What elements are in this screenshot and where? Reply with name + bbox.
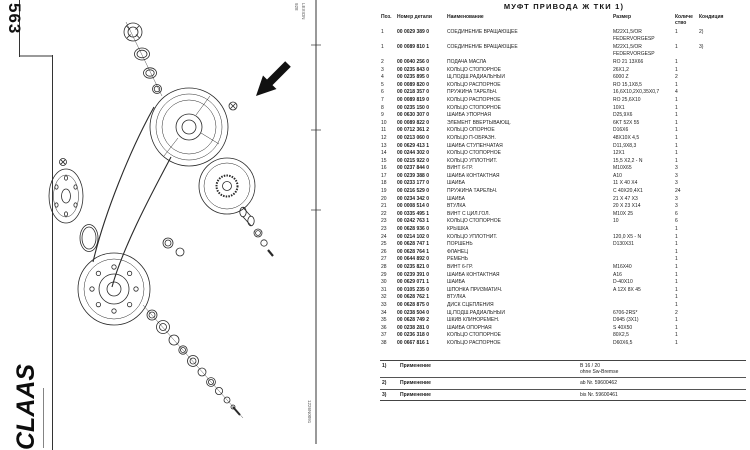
note-row: 2)Применениеab Nr. 59600462 [380,377,746,388]
cell-pn: 00 0335 495 1 [396,211,446,219]
cell-cond [698,302,746,310]
cell-pos: 15 [380,158,396,166]
col-header-name: Наименование [446,14,612,29]
cell-cond [698,317,746,325]
exploded-diagram [0,0,375,450]
table-row: 1100 0712 361 2КОЛЬЦО ОПОРНОЕD16X61 [380,127,746,135]
shaft-parts-cascade [163,207,273,256]
cell-name: КРЫШКА [446,226,612,234]
cell-cond: 3) [698,44,746,59]
table-row: 2600 0628 764 1ФЛАНЕЦ1 [380,249,746,257]
fastener-cascade [143,305,243,418]
cell-pn: 00 0644 892 0 [396,256,446,264]
note-value: ab Nr. 59600462 [580,380,746,386]
cell-pos: 6 [380,89,396,97]
model-label: LEXION [301,3,306,20]
cell-name: ВИНТ 6-ГР. [446,264,612,272]
table-row: 2300 0628 936 0КРЫШКА1 [380,226,746,234]
col-header-size: Размер [612,14,674,29]
cell-cond [698,249,746,257]
cell-cond [698,143,746,151]
col-header-part-number: Номер детали [396,14,446,29]
cell-cond [698,188,746,196]
cell-cond [698,279,746,287]
cell-pos: 13 [380,143,396,151]
cell-qty: 1 [674,302,698,310]
cell-pos: 36 [380,325,396,333]
table-row: 700 0089 819 0КОЛЬЦО РАСПОРНОЕRO 25,6X10… [380,97,746,105]
cell-size [612,249,674,257]
cell-qty: 1 [674,135,698,143]
cell-cond [698,150,746,158]
cell-pos: 5 [380,82,396,90]
cell-pos: 26 [380,249,396,257]
cell-name: ШАЙБА УПОРНАЯ [446,112,612,120]
cell-name: ВИНТ 6-ГР. [446,165,612,173]
cell-pos: 22 [380,211,396,219]
cell-pos: 1 [380,29,396,44]
cell-qty: 1 [674,29,698,44]
cell-size: 48X10X 4,5 [612,135,674,143]
cell-cond [698,82,746,90]
table-row: 1300 0629 413 1ШАЙБА СТУПЕНЧАТАЯD11,9X8,… [380,143,746,151]
cell-qty: 1 [674,127,698,135]
cell-pn: 00 0089 822 0 [396,120,446,128]
table-row: 1500 0215 922 0КОЛЬЦО УПЛОТНИТ.15,5 X2,2… [380,158,746,166]
diagram-page: 563 928 LEXION 1226N0091 CLAAS [0,0,375,450]
cell-name: ПРУЖИНА ТАРЕЛЬЧ. [446,188,612,196]
cell-name: КОЛЬЦО УПЛОТНИТ. [446,158,612,166]
cell-pn: 00 0218 357 0 [396,89,446,97]
note-label: Применение [400,380,580,386]
cell-size: 10X1 [612,105,674,113]
cell-pos: 12 [380,135,396,143]
cell-size: A16 [612,272,674,280]
table-row: 2200 0335 495 1ВИНТ С ЦИЛ.ГОЛ.M10X 256 [380,211,746,219]
cell-name: ВИНТ С ЦИЛ.ГОЛ. [446,211,612,219]
table-row: 800 0235 150 0КОЛЬЦО СТОПОРНОЕ10X11 [380,105,746,113]
cell-size: 6706-2RS* [612,310,674,318]
table-row: 3700 0236 318 0КОЛЬЦО СТОПОРНОЕ80X2,51 [380,332,746,340]
cell-size: D11,9X8,3 [612,143,674,151]
cell-cond [698,173,746,181]
cell-size: M22X1,5/OR FEDERVORGESP [612,29,674,44]
note-value: B 16 / 20 ohne Sw-Bremse [580,363,746,376]
cell-name: ШКИВ КЛИНОРЕМЕН. [446,317,612,325]
parts-list-page: МУФТ ПРИВОДА Ж ТКИ 1) Поз. Номер детали … [380,0,748,450]
cell-cond [698,105,746,113]
cell-qty: 1 [674,325,698,333]
cell-size: 6KT 52X 55 [612,120,674,128]
col-header-qty: Количе ство [674,14,698,29]
cell-cond [698,127,746,135]
cell-size: D25,9X6 [612,112,674,120]
cell-cond [698,294,746,302]
cell-pos: 7 [380,97,396,105]
cell-cond [698,241,746,249]
cell-name: ФЛАНЕЦ [446,249,612,257]
circled-cross-mark [60,102,238,166]
table-row: 600 0218 357 0ПРУЖИНА ТАРЕЛЬЧ.16,6X10,2X… [380,89,746,97]
notes-section: 1)ПрименениеB 16 / 20 ohne Sw-Bremse2)Пр… [380,360,746,402]
cell-pn: 00 0233 177 0 [396,180,446,188]
cell-cond [698,340,746,348]
cell-pn: 00 0628 875 0 [396,302,446,310]
cell-pos: 2 [380,59,396,67]
cell-pn: 00 0235 895 0 [396,74,446,82]
cell-size: 6000 Z [612,74,674,82]
cell-pn: 00 0628 936 0 [396,226,446,234]
cell-pos: 34 [380,310,396,318]
cell-pos: 1 [380,44,396,59]
cell-pos: 28 [380,264,396,272]
cell-qty: 1 [674,234,698,242]
cell-name: ШАЙБА ОПОРНАЯ [446,325,612,333]
cell-qty: 1 [674,279,698,287]
cell-cond [698,264,746,272]
parts-table: Поз. Номер детали Наименование Размер Ко… [380,14,746,348]
cell-size: C 40X20,4X1 [612,188,674,196]
cell-pn: 00 0628 762 1 [396,294,446,302]
cell-qty: 3 [674,196,698,204]
cell-pn: 00 0235 821 0 [396,264,446,272]
cell-pos: 3 [380,67,396,75]
cell-cond [698,218,746,226]
cell-qty: 3 [674,203,698,211]
cell-size [612,294,674,302]
note-value: bis Nr. 59600461 [580,392,746,398]
cell-cond [698,325,746,333]
cell-size: S 40X50 [612,325,674,333]
cell-name: КОЛЬЦО РАСПОРНОЕ [446,340,612,348]
cell-size: 120,0 X5 - N [612,234,674,242]
cell-cond [698,59,746,67]
cell-qty: 1 [674,272,698,280]
cell-size: D60X6,5 [612,340,674,348]
cell-pn: 00 0214 102 0 [396,234,446,242]
table-header-row: Поз. Номер детали Наименование Размер Ко… [380,14,746,29]
table-row: 2500 0628 747 1ПОРШЕНЬD130X311 [380,241,746,249]
cell-size: M16X40 [612,264,674,272]
o-ring [80,225,98,252]
cell-qty: 1 [674,249,698,257]
cell-pos: 25 [380,241,396,249]
cell-qty: 1 [674,287,698,295]
cell-pn: 00 0008 514 0 [396,203,446,211]
cell-cond [698,165,746,173]
page-title: МУФТ ПРИВОДА Ж ТКИ 1) [380,0,748,11]
note-ref: 1) [382,363,400,376]
cell-name: ШАЙБА СТУПЕНЧАТАЯ [446,143,612,151]
cell-pos: 31 [380,287,396,295]
cell-qty: 1 [674,143,698,151]
table-row: 1900 0216 529 0ПРУЖИНА ТАРЕЛЬЧ.C 40X20,4… [380,188,746,196]
cell-name: ЭЛЕМЕНТ ВВЕРТЫВАЮЩ. [446,120,612,128]
cell-cond [698,120,746,128]
cell-pos: 18 [380,180,396,188]
cell-size: 20 X 23 X14 [612,203,674,211]
cell-qty: 3 [674,180,698,188]
cell-pn: 00 0213 060 0 [396,135,446,143]
cell-cond [698,203,746,211]
cell-name: КОЛЬЦО УПЛОТНИТ. [446,234,612,242]
cell-cond [698,158,746,166]
cell-size: 11 X 40 X4 [612,180,674,188]
cell-qty: 1 [674,120,698,128]
cell-name: КОЛЬЦО СТОПОРНОЕ [446,218,612,226]
cell-qty: 6 [674,218,698,226]
v-belt [93,107,171,287]
cell-pos: 19 [380,188,396,196]
cell-pn: 00 0234 342 0 [396,196,446,204]
edge-code-top: 928 [294,3,299,11]
cell-qty: 6 [674,211,698,219]
table-row: 2900 0239 391 0ШАЙБА КОНТАКТНАЯA161 [380,272,746,280]
cell-cond [698,256,746,264]
table-row: 3500 0628 749 2ШКИВ КЛИНОРЕМЕН.D945 (3X1… [380,317,746,325]
table-row: 2800 0235 821 0ВИНТ 6-ГР.M16X401 [380,264,746,272]
cell-qty: 1 [674,158,698,166]
table-row: 2000 0234 342 0ШАЙБА21 X 47 X33 [380,196,746,204]
cell-pn: 00 0712 361 2 [396,127,446,135]
cell-cond [698,287,746,295]
cell-pn: 00 0667 816 1 [396,340,446,348]
table-row: 1000 0089 822 0ЭЛЕМЕНТ ВВЕРТЫВАЮЩ.6KT 52… [380,120,746,128]
table-row: 1700 0239 388 0ШАЙБА КОНТАКТНАЯA103 [380,173,746,181]
cell-name: КОЛЬЦО СТОПОРНОЕ [446,332,612,340]
cell-qty: 24 [674,188,698,196]
cell-pn: 00 0236 318 0 [396,332,446,340]
drawing-code: 1226N0091 [307,400,312,423]
cell-name: КОЛЬЦО СТОПОРНОЕ [446,67,612,75]
cell-cond [698,97,746,105]
cell-qty: 1 [674,294,698,302]
table-row: 300 0235 843 0КОЛЬЦО СТОПОРНОЕ26X1,21 [380,67,746,75]
cell-name: КОЛЬЦО СТОПОРНОЕ [446,105,612,113]
cell-qty: 3 [674,173,698,181]
cell-pos: 17 [380,173,396,181]
cell-pn: 00 0089 819 0 [396,97,446,105]
cell-size: D945 (3X1) [612,317,674,325]
cell-size: RO 25,6X10 [612,97,674,105]
cell-pn: 00 0040 256 0 [396,59,446,67]
table-row: 1600 0237 844 0ВИНТ 6-ГР.M10X653 [380,165,746,173]
cell-pn: 00 0628 764 1 [396,249,446,257]
cell-pos: 24 [380,234,396,242]
cell-pn: 00 0105 235 0 [396,287,446,295]
cell-pn: 00 0237 844 0 [396,165,446,173]
lower-drum-pulley [78,253,150,325]
cell-qty: 1 [674,241,698,249]
cell-size: RO 21 13X66 [612,59,674,67]
cell-pos: 9 [380,112,396,120]
cell-name: РЕМЕНЬ [446,256,612,264]
table-row: 3400 0238 504 0Щ.ПОДШ.РАДИАЛЬНЫЙ6706-2RS… [380,310,746,318]
cell-pn: 00 0089 820 0 [396,82,446,90]
cell-cond [698,67,746,75]
cell-size: 80X2,5 [612,332,674,340]
cell-pn: 00 0239 391 0 [396,272,446,280]
cell-name: ВТУЛКА [446,294,612,302]
page-frame [20,0,317,450]
cell-name: ДИСК СЦЕПЛЕНИЯ [446,302,612,310]
direction-arrow [256,61,291,96]
cell-pos: 23 [380,226,396,234]
cell-qty: 1 [674,317,698,325]
cell-qty: 1 [674,105,698,113]
col-header-pos: Поз. [380,14,396,29]
cell-cond [698,180,746,188]
cell-pn: 00 0628 747 1 [396,241,446,249]
note-ref: 2) [382,380,400,386]
cell-cond [698,234,746,242]
cell-qty: 1 [674,150,698,158]
cell-pos: 14 [380,150,396,158]
cell-name: ШАЙБА [446,180,612,188]
cell-cond [698,310,746,318]
cell-name: Щ.ПОДШ.РАДИАЛЬНЫЙ [446,74,612,82]
cell-cond [698,196,746,204]
cell-name: КОЛЬЦО ОПОРНОЕ [446,127,612,135]
cell-pos: 37 [380,332,396,340]
cell-cond [698,89,746,97]
cell-cond [698,211,746,219]
table-row: 2400 0214 102 0КОЛЬЦО УПЛОТНИТ.120,0 X5 … [380,234,746,242]
cell-qty: 3 [674,165,698,173]
cell-pos: 10 [380,120,396,128]
cell-qty: 1 [674,44,698,59]
cell-cond [698,226,746,234]
cell-cond [698,112,746,120]
cell-qty: 4 [674,89,698,97]
cell-pos: 30 [380,279,396,287]
cell-qty: 2 [674,310,698,318]
cell-size [612,226,674,234]
cell-size: M10X 25 [612,211,674,219]
cell-cond [698,135,746,143]
cell-pos: 8 [380,105,396,113]
table-row: 2300 0242 763 1КОЛЬЦО СТОПОРНОЕ106 [380,218,746,226]
cell-size: D130X31 [612,241,674,249]
cell-name: ШАЙБА КОНТАКТНАЯ [446,173,612,181]
cell-pn: 00 0235 150 0 [396,105,446,113]
catalog-spread: 563 928 LEXION 1226N0091 CLAAS МУФТ ПРИВ… [0,0,750,450]
cell-pn: 00 0628 749 2 [396,317,446,325]
upper-pulley [150,88,228,166]
cell-cond [698,74,746,82]
cell-qty: 1 [674,67,698,75]
cell-name: ШПОНКА ПРИЗМАТИЧ. [446,287,612,295]
cell-name: ПОДАЧА МАСЛА [446,59,612,67]
note-ref: 3) [382,392,400,398]
cell-pn: 00 0630 307 0 [396,112,446,120]
bearing-and-rings-cluster [124,22,162,96]
cell-pos: 29 [380,272,396,280]
cell-qty: 1 [674,82,698,90]
cell-qty: 1 [674,340,698,348]
cell-pn: 00 0244 302 0 [396,150,446,158]
note-row: 1)ПрименениеB 16 / 20 ohne Sw-Bremse [380,361,746,378]
parts-table-body: 100 0029 389 0СОЕДИНЕНИЕ ВРАЩАЮЩЕЕM22X1,… [380,29,746,348]
cell-pn: 00 0215 922 0 [396,158,446,166]
table-row: 3600 0238 281 0ШАЙБА ОПОРНАЯS 40X501 [380,325,746,333]
cell-pn: 00 0235 843 0 [396,67,446,75]
cell-size: A10 [612,173,674,181]
cell-qty: 2 [674,74,698,82]
clutch-hub-pulley [199,158,255,214]
cell-pos: 16 [380,165,396,173]
cell-name: ВТУЛКА [446,203,612,211]
cell-name: ПОРШЕНЬ [446,241,612,249]
cell-pos: 11 [380,127,396,135]
cell-qty: 1 [674,256,698,264]
table-row: 2100 0008 514 0ВТУЛКА20 X 23 X143 [380,203,746,211]
cell-cond: 2) [698,29,746,44]
cell-name: СОЕДИНЕНИЕ ВРАЩАЮЩЕЕ [446,29,612,44]
table-row: 100 0089 810 1СОЕДИНЕНИЕ ВРАЩАЮЩЕЕM22X1,… [380,44,746,59]
table-row: 100 0029 389 0СОЕДИНЕНИЕ ВРАЩАЮЩЕЕM22X1,… [380,29,746,44]
cell-qty: 1 [674,59,698,67]
col-header-condition: Кондиция [698,14,746,29]
cell-pos: 27 [380,256,396,264]
cell-pos: 33 [380,302,396,310]
note-label: Применение [400,363,580,376]
cell-size [612,302,674,310]
cell-pos: 20 [380,196,396,204]
cell-pn: 00 0629 071 1 [396,279,446,287]
table-row: 400 0235 895 0Щ.ПОДШ.РАДИАЛЬНЫЙ6000 Z2 [380,74,746,82]
cell-pos: 4 [380,74,396,82]
cell-qty: 1 [674,112,698,120]
claas-logo: CLAAS [12,362,41,450]
table-row: 1200 0213 060 0КОЛЬЦО П-ОБРАЗН.48X10X 4,… [380,135,746,143]
table-row: 500 0089 820 0КОЛЬЦО РАСПОРНОЕRO 15,1X8,… [380,82,746,90]
cell-name: КОЛЬЦО СТОПОРНОЕ [446,150,612,158]
cell-name: КОЛЬЦО П-ОБРАЗН. [446,135,612,143]
table-row: 3100 0105 235 0ШПОНКА ПРИЗМАТИЧ.A 12X 8X… [380,287,746,295]
cell-pos: 21 [380,203,396,211]
cell-qty: 1 [674,332,698,340]
cell-size [612,256,674,264]
cell-size: RO 15,1X8,5 [612,82,674,90]
flange-disc [49,169,83,223]
table-row: 3200 0628 762 1ВТУЛКА1 [380,294,746,302]
cell-name: ШАЙБА [446,279,612,287]
cell-size: M10X65 [612,165,674,173]
cell-size: 26X1,2 [612,67,674,75]
cell-size: 21 X 47 X3 [612,196,674,204]
cell-cond [698,332,746,340]
cell-pos: 23 [380,218,396,226]
cell-pos: 35 [380,317,396,325]
cell-pn: 00 0629 413 1 [396,143,446,151]
cell-name: ШАЙБА [446,196,612,204]
cell-size: D-40X10 [612,279,674,287]
table-row: 1400 0244 302 0КОЛЬЦО СТОПОРНОЕ12X11 [380,150,746,158]
cell-name: КОЛЬЦО РАСПОРНОЕ [446,82,612,90]
table-row: 3800 0667 816 1КОЛЬЦО РАСПОРНОЕD60X6,51 [380,340,746,348]
cell-name: ШАЙБА КОНТАКТНАЯ [446,272,612,280]
note-row: 3)Применениеbis Nr. 59600461 [380,389,746,400]
cell-name: КОЛЬЦО РАСПОРНОЕ [446,97,612,105]
note-label: Применение [400,392,580,398]
cell-name: СОЕДИНЕНИЕ ВРАЩАЮЩЕЕ [446,44,612,59]
cell-pn: 00 0239 388 0 [396,173,446,181]
table-row: 1800 0233 177 0ШАЙБА11 X 40 X43 [380,180,746,188]
cell-qty: 1 [674,264,698,272]
table-row: 2700 0644 892 0РЕМЕНЬ1 [380,256,746,264]
table-row: 3000 0629 071 1ШАЙБАD-40X101 [380,279,746,287]
